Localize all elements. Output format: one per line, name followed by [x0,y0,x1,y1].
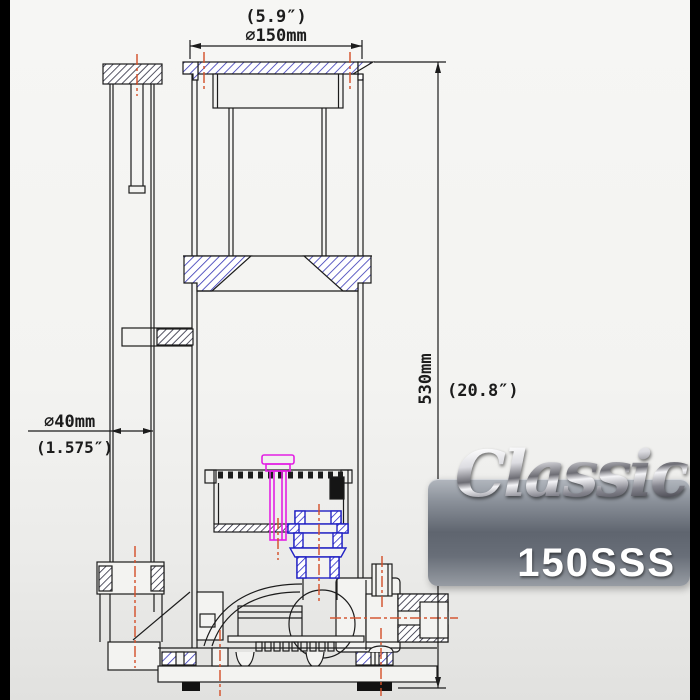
product-spec-image: (5.9″) ⌀150mm 530mm (20.8″) ⌀40mm (1.575… [0,0,700,700]
dim-top-metric: ⌀150mm [245,26,306,46]
dimension-left: ⌀40mm (1.575″) [28,412,153,457]
right-frame-bar [690,0,700,700]
dim-left-metric: ⌀40mm [44,412,95,432]
pump-outlet-union [288,511,348,578]
base-plate [158,646,437,691]
dim-right-inches: (20.8″) [447,381,519,401]
dim-top-inches: (5.9″) [245,7,306,27]
collection-cup [183,74,372,291]
left-frame-bar [0,0,10,700]
brand-logo-text: Classic [451,443,690,507]
brand-badge: Classic 150SSS [428,479,690,586]
outlet-standpipe [103,64,162,562]
model-number-text: 150SSS [517,543,676,583]
dim-right-metric: 530mm [416,353,436,404]
dim-left-inches: (1.575″) [36,438,113,457]
skimmer-technical-drawing: (5.9″) ⌀150mm 530mm (20.8″) ⌀40mm (1.575… [0,0,700,700]
dimension-top: (5.9″) ⌀150mm [190,7,362,59]
